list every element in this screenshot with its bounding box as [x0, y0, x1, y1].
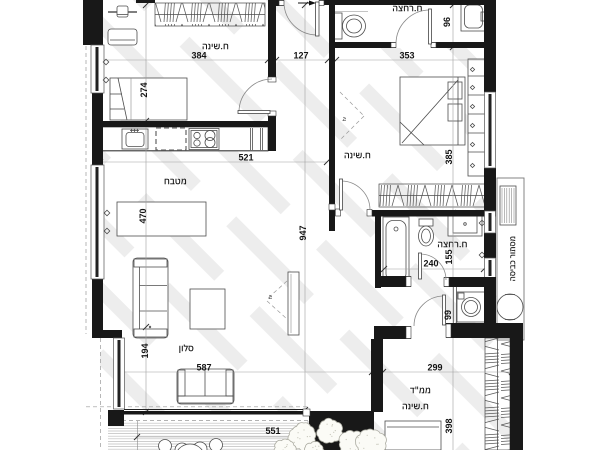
svg-text:96: 96: [442, 17, 452, 27]
svg-text:470: 470: [138, 208, 148, 223]
svg-text:99: 99: [443, 310, 453, 320]
svg-text:385: 385: [444, 149, 454, 164]
svg-text:127: 127: [293, 51, 308, 61]
svg-text:tv: tv: [342, 117, 348, 122]
svg-text:521: 521: [238, 153, 253, 163]
svg-text:299: 299: [427, 363, 442, 373]
svg-text:353: 353: [399, 51, 414, 61]
svg-text:155: 155: [444, 249, 454, 264]
svg-text:274: 274: [139, 82, 149, 97]
svg-text:551: 551: [265, 426, 280, 436]
svg-text:tv: tv: [268, 295, 274, 300]
svg-text:194: 194: [140, 343, 150, 358]
svg-text:947: 947: [298, 225, 308, 240]
svg-text:587: 587: [196, 363, 211, 373]
svg-text:398: 398: [444, 418, 454, 433]
svg-text:240: 240: [423, 259, 438, 269]
svg-text:384: 384: [191, 51, 206, 61]
